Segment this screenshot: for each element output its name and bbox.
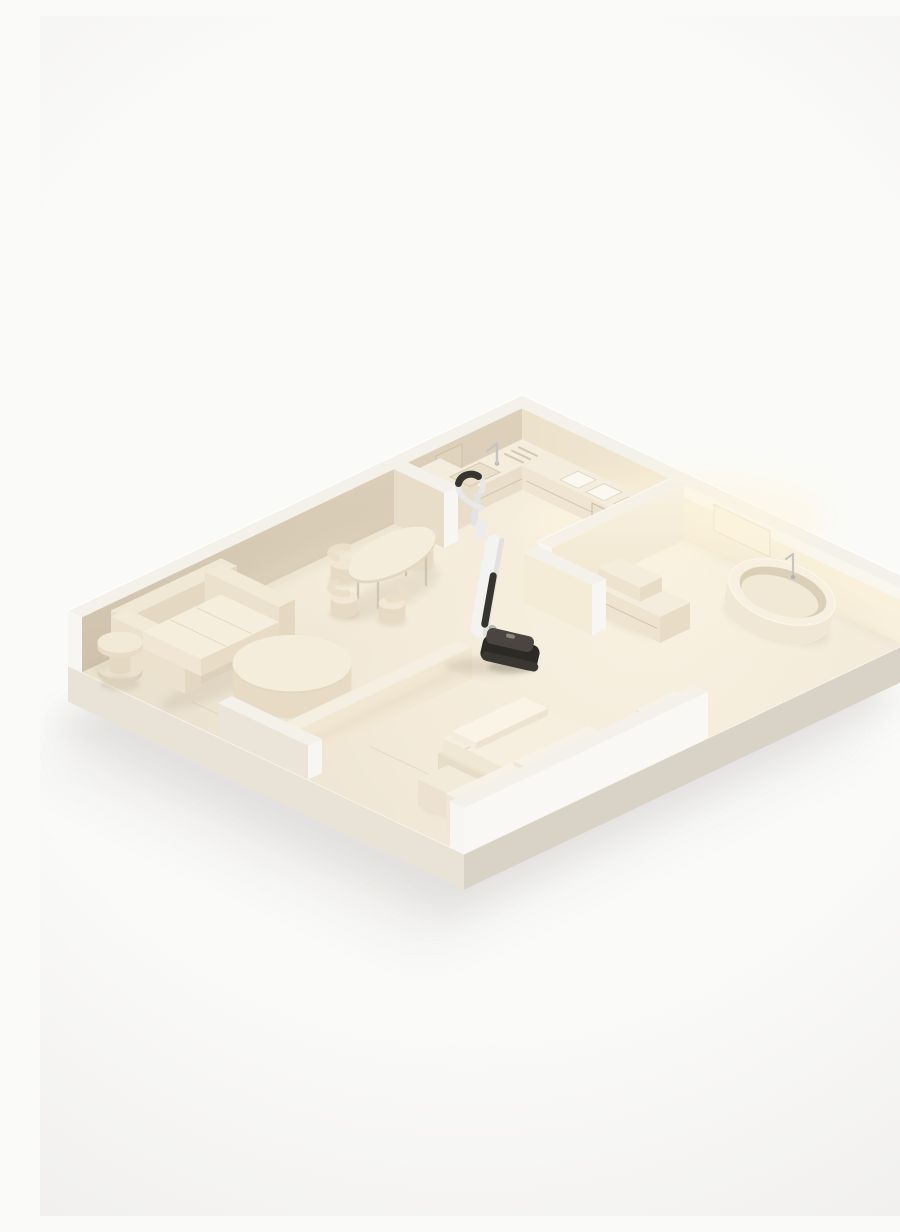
- product-lifestyle-render: [40, 16, 900, 1216]
- isometric-scene: [40, 16, 900, 1216]
